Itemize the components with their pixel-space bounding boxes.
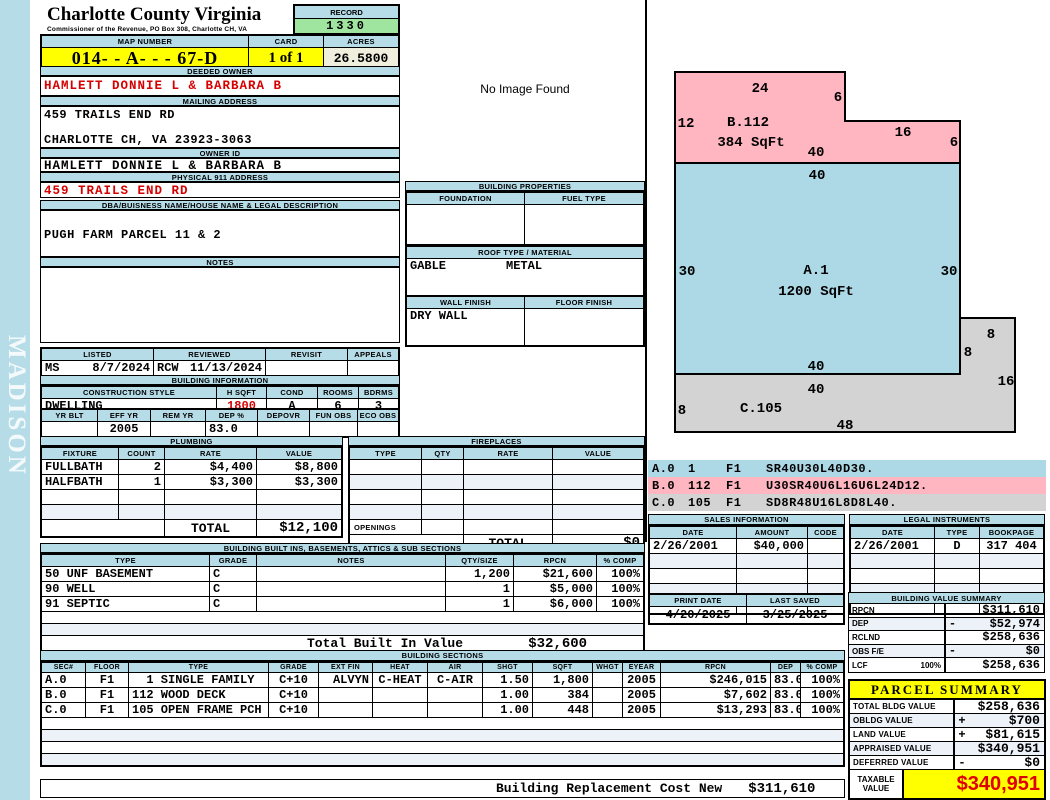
construction-style-label: CONSTRUCTION STYLE — [42, 387, 217, 399]
listed-value: MS 8/7/2024 — [42, 361, 154, 376]
funobs-value — [310, 422, 358, 437]
sales-header: SALES INFORMATION — [648, 514, 845, 525]
visits-table: LISTED REVIEWED REVISIT APPEALS MS 8/7/2… — [40, 347, 400, 377]
floor-finish-value — [525, 309, 644, 346]
building-sections-header: BUILDING SECTIONS — [40, 650, 845, 661]
fireplace-empty-row — [350, 505, 644, 520]
taxable-value-amount: $340,951 — [904, 770, 1044, 798]
sketch-sqft-b: 384 SqFt — [717, 135, 784, 151]
deeded-owner-header: DEEDED OWNER — [40, 66, 400, 76]
record-box: RECORD 1330 — [293, 4, 400, 35]
section-empty-row — [42, 742, 844, 754]
value-summary-row: RPCN $311,610 — [849, 604, 1044, 618]
replacement-cost-label: Building Replacement Cost New — [496, 781, 722, 796]
section-empty-row — [42, 754, 844, 766]
legal-empty-row — [851, 554, 1044, 569]
fireplace-empty-row — [350, 490, 644, 505]
last-saved-value: 3/25/2025 — [747, 607, 844, 624]
rooms-label: ROOMS — [318, 387, 359, 399]
built-ins-total-label: Total Built In Value — [307, 636, 463, 651]
last-saved-label: LAST SAVED — [747, 595, 844, 607]
plumbing-table: FIXTURE COUNT RATE VALUE FULLBATH 2 $4,4… — [40, 446, 343, 538]
dba-value: PUGH FARM PARCEL 11 & 2 — [41, 227, 399, 243]
value-col-label: VALUE — [257, 448, 342, 460]
dim-c-tab-top: 8 — [987, 327, 995, 343]
section-row: C.0 F1 105 OPEN FRAME PCH C+10 1.00 448 … — [42, 703, 844, 718]
roof-type-value: GABLE — [410, 259, 446, 273]
floor-finish-label: FLOOR FINISH — [525, 297, 644, 309]
dim-c-left: 8 — [678, 403, 686, 419]
appeals-label: APPEALS — [348, 349, 399, 361]
dep-label: DEP % — [206, 410, 258, 422]
taxable-value-label: TAXABLE VALUE — [850, 770, 904, 798]
print-date-label: PRINT DATE — [650, 595, 747, 607]
replacement-cost-row: Building Replacement Cost New $311,610 — [40, 779, 845, 798]
taxable-value-row: TAXABLE VALUE $340,951 — [850, 770, 1044, 798]
year-dep-table: YR BLT EFF YR REM YR DEP % DEPOVR FUN OB… — [40, 408, 400, 438]
plumbing-row: HALFBATH 1 $3,300 $3,300 — [42, 475, 342, 490]
dim-b-step: 6 — [834, 90, 842, 106]
built-in-row: 90 WELL C 1 $5,000 100% — [42, 582, 644, 597]
dim-b-top: 24 — [752, 81, 769, 97]
roof-label: ROOF TYPE / MATERIAL — [407, 247, 644, 259]
yrblt-value — [42, 422, 98, 437]
fueltype-label: FUEL TYPE — [525, 193, 644, 205]
reviewed-value: RCW 11/13/2024 — [154, 361, 266, 376]
dim-b-mid: 16 — [895, 125, 912, 141]
print-saved-table: PRINT DATE LAST SAVED 4/20/2025 3/25/202… — [648, 593, 845, 625]
building-sections-table: SEC# FLOOR TYPE GRADE EXT FIN HEAT AIR S… — [40, 661, 845, 767]
listed-label: LISTED — [42, 349, 154, 361]
built-in-empty-row — [42, 624, 644, 636]
revisit-label: REVISIT — [266, 349, 348, 361]
fireplaces-header: FIREPLACES — [348, 436, 645, 446]
roof-material-value: METAL — [506, 259, 542, 273]
bdrms-label: BDRMS — [359, 387, 399, 399]
foundation-fuel-table: FOUNDATION FUEL TYPE — [405, 191, 645, 246]
hsqft-label: H SQFT — [217, 387, 267, 399]
plumbing-total-label: TOTAL — [165, 520, 257, 537]
card-label: CARD — [249, 36, 324, 48]
sketch-code-row-c: C.0 105 F1 SD8R48U16L8D8L40. — [648, 494, 1046, 511]
fixture-col-label: FIXTURE — [42, 448, 119, 460]
parcel-summary-row: TOTAL BLDG VALUE $258,636 — [850, 700, 1044, 714]
dim-a-bottom: 40 — [808, 359, 825, 375]
parcel-summary: PARCEL SUMMARY TOTAL BLDG VALUE $258,636… — [848, 679, 1046, 800]
section-empty-row — [42, 730, 844, 742]
fireplaces-openings-row: OPENINGS — [350, 520, 644, 535]
wall-finish-label: WALL FINISH — [407, 297, 525, 309]
funobs-label: FUN OBS — [310, 410, 358, 422]
dep-value: 83.0 — [206, 422, 258, 437]
built-ins-header: BUILDING BUILT INS, BASEMENTS, ATTICS & … — [40, 543, 645, 553]
sketch-codes: A.0 1 F1 SR40U30L40D30. B.0 112 F1 U30SR… — [648, 460, 1046, 511]
sketch-label-a: A.1 — [803, 263, 828, 279]
record-value: 1330 — [295, 19, 398, 33]
count-col-label: COUNT — [119, 448, 165, 460]
effyr-value: 2005 — [98, 422, 151, 437]
parcel-summary-row: APPRAISED VALUE $340,951 — [850, 742, 1044, 756]
fireplace-empty-row — [350, 475, 644, 490]
building-properties-header: BUILDING PROPERTIES — [405, 181, 645, 191]
sketch-code-row-b: B.0 112 F1 U30SR40U6L16U6L24D12. — [648, 477, 1046, 494]
dim-b-left: 12 — [678, 116, 695, 132]
sales-empty-row — [650, 569, 844, 584]
sketch-sqft-a: 1200 SqFt — [778, 284, 854, 300]
center-divider — [645, 0, 647, 542]
fueltype-value — [525, 205, 644, 245]
appeals-value — [348, 361, 399, 376]
fireplaces-table: TYPE QTY RATE VALUE OPENINGS TOTAL $0 — [348, 446, 645, 553]
effyr-label: EFF YR — [98, 410, 151, 422]
wall-finish-value: DRY WALL — [407, 309, 525, 346]
roof-table: ROOF TYPE / MATERIAL GABLE METAL — [405, 245, 645, 297]
dba-box: PUGH FARM PARCEL 11 & 2 — [40, 210, 400, 257]
sketch-code-row-a: A.0 1 F1 SR40U30L40D30. — [648, 460, 1046, 477]
building-info-header: BUILDING INFORMATION — [40, 375, 400, 385]
plumbing-total-value: $12,100 — [257, 520, 342, 537]
built-in-empty-row — [42, 612, 644, 624]
cond-label: COND — [267, 387, 318, 399]
value-summary-row: RCLND $258,636 — [849, 631, 1044, 645]
parcel-summary-row: LAND VALUE + $81,615 — [850, 728, 1044, 742]
legal-row: 2/26/2001 D 317 404 — [851, 539, 1044, 554]
county-title: Charlotte County Virginia — [47, 4, 293, 26]
mailing-address-box: 459 TRAILS END RD CHARLOTTE CH, VA 23923… — [40, 106, 400, 148]
foundation-label: FOUNDATION — [407, 193, 525, 205]
dim-c-top: 40 — [808, 382, 825, 398]
dim-a-left: 30 — [679, 264, 696, 280]
dim-b-right: 6 — [950, 135, 958, 151]
replacement-cost-value: $311,610 — [748, 781, 815, 797]
parcel-summary-row: OBLDG VALUE + $700 — [850, 714, 1044, 728]
physical-address-value: 459 TRAILS END RD — [40, 182, 400, 198]
no-image-placeholder: No Image Found — [405, 82, 645, 96]
notes-box — [40, 267, 400, 343]
mailing-address-header: MAILING ADDRESS — [40, 96, 400, 106]
built-in-row: 91 SEPTIC C 1 $6,000 100% — [42, 597, 644, 612]
sketch-label-b: B.112 — [727, 115, 769, 131]
value-summary-row: OBS F/E - $0 — [849, 645, 1044, 659]
deeded-owner-value: HAMLETT DONNIE L & BARBARA B — [40, 76, 400, 96]
print-date-value: 4/20/2025 — [650, 607, 747, 624]
dim-c-bottom: 48 — [837, 418, 854, 434]
owner-id-value: HAMLETT DONNIE L & BARBARA B — [40, 158, 400, 172]
yrblt-label: YR BLT — [42, 410, 98, 422]
property-record-card: MADISON Charlotte County Virginia Commis… — [0, 0, 1050, 800]
dim-c-tab-left: 8 — [964, 345, 972, 361]
remyr-value — [151, 422, 206, 437]
agency-header: Charlotte County Virginia Commissioner o… — [47, 4, 293, 33]
acres-label: ACRES — [324, 36, 399, 48]
notes-value — [41, 268, 399, 270]
physical-address-header: PHYSICAL 911 ADDRESS — [40, 172, 400, 182]
section-row: A.0 F1 1 SINGLE FAMILY C+10 ALVYN C-HEAT… — [42, 673, 844, 688]
dim-a-top: 40 — [809, 168, 826, 184]
foundation-value — [407, 205, 525, 245]
record-label: RECORD — [295, 6, 398, 19]
county-sidebar-band: MADISON — [0, 0, 30, 800]
plumbing-empty-row — [42, 490, 342, 505]
ecoobs-label: ECO OBS — [358, 410, 399, 422]
sales-empty-row — [650, 554, 844, 569]
building-value-summary: BUILDING VALUE SUMMARY RPCN $311,610 DEP… — [848, 592, 1045, 673]
sales-row: 2/26/2001 $40,000 — [650, 539, 844, 554]
ecoobs-value — [358, 422, 399, 437]
built-ins-table: TYPE GRADE NOTES QTY/SIZE RPCN % COMP 50… — [40, 553, 645, 654]
section-empty-row — [42, 718, 844, 730]
depovr-label: DEPOVR — [258, 410, 310, 422]
map-number-label: MAP NUMBER — [42, 36, 249, 48]
county-watermark: MADISON — [0, 335, 30, 477]
revisit-value — [266, 361, 348, 376]
county-subtitle: Commissioner of the Revenue, PO Box 308,… — [47, 26, 293, 33]
remyr-label: REM YR — [151, 410, 206, 422]
value-summary-row: DEP - $52,974 — [849, 618, 1044, 632]
plumbing-total-row: TOTAL $12,100 — [42, 520, 342, 537]
built-in-row: 50 UNF BASEMENT C 1,200 $21,600 100% — [42, 567, 644, 582]
dba-header: DBA/BUISNESS NAME/HOUSE NAME & LEGAL DES… — [40, 200, 400, 210]
plumbing-empty-row — [42, 505, 342, 520]
parcel-summary-row: DEFERRED VALUE - $0 — [850, 756, 1044, 770]
legal-empty-row — [851, 569, 1044, 584]
sketch-label-c: C.105 — [740, 401, 782, 417]
section-row: B.0 F1 112 WOOD DECK C+10 1.00 384 2005 … — [42, 688, 844, 703]
plumbing-header: PLUMBING — [40, 436, 343, 446]
legal-header: LEGAL INSTRUMENTS — [849, 514, 1045, 525]
mailing-address-line2: CHARLOTTE CH, VA 23923-3063 — [41, 132, 399, 148]
wall-floor-table: WALL FINISH FLOOR FINISH DRY WALL — [405, 295, 645, 347]
owner-id-header: OWNER ID — [40, 148, 400, 158]
dim-a-right: 30 — [941, 264, 958, 280]
dim-c-tab-right: 16 — [998, 374, 1015, 390]
mailing-address-line1: 459 TRAILS END RD — [41, 107, 399, 123]
fireplace-empty-row — [350, 460, 644, 475]
building-sketch: 24 6 12 B.112 384 SqFt 16 6 40 40 30 A.1… — [648, 35, 1047, 455]
notes-header: NOTES — [40, 257, 400, 267]
plumbing-row: FULLBATH 2 $4,400 $8,800 — [42, 460, 342, 475]
value-summary-row: LCF100% $258,636 — [849, 658, 1044, 672]
dim-b-bottom: 40 — [808, 145, 825, 161]
rate-col-label: RATE — [165, 448, 257, 460]
parcel-summary-header: PARCEL SUMMARY — [850, 681, 1044, 700]
depovr-value — [258, 422, 310, 437]
reviewed-label: REVIEWED — [154, 349, 266, 361]
openings-label: OPENINGS — [350, 520, 422, 535]
